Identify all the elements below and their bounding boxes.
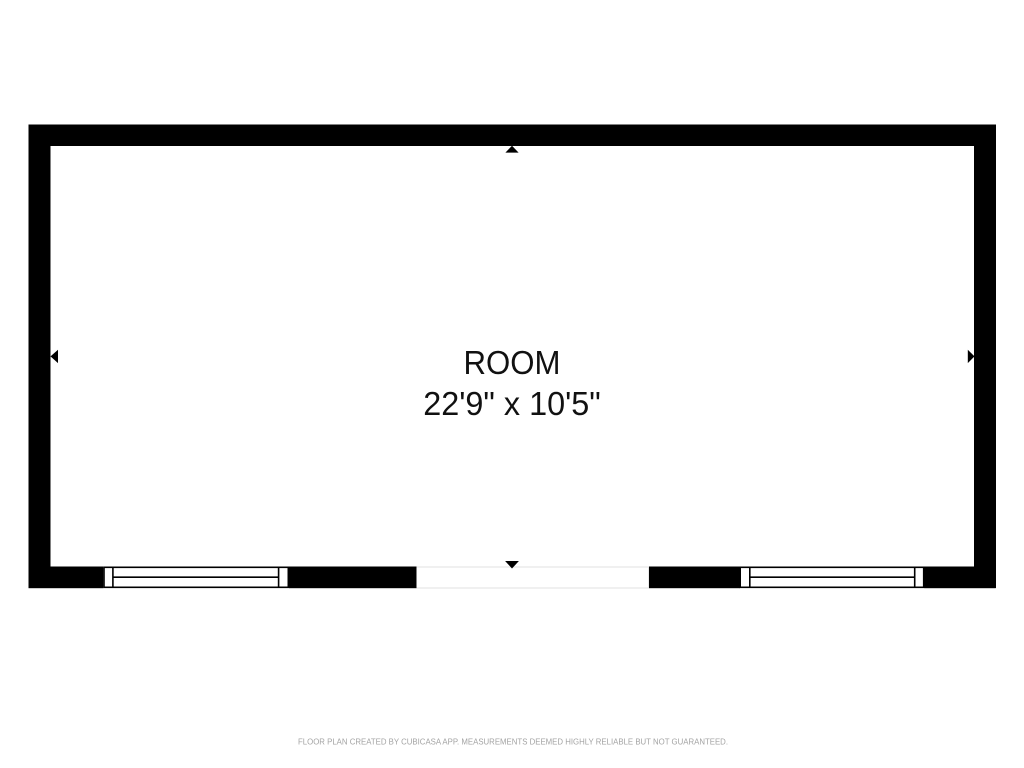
svg-text:22'9" x 10'5": 22'9" x 10'5" (423, 386, 601, 423)
svg-text:ROOM: ROOM (464, 345, 561, 382)
svg-text:FLOOR PLAN CREATED BY CUBICASA: FLOOR PLAN CREATED BY CUBICASA APP. MEAS… (298, 737, 728, 747)
